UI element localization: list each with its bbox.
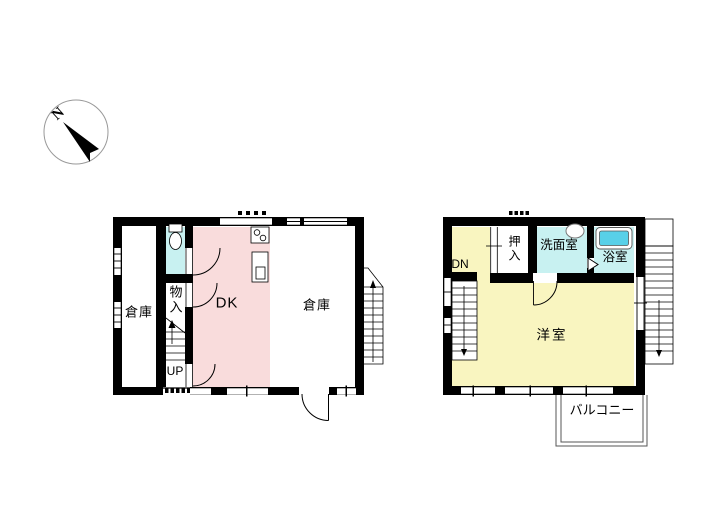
compass-needle-icon xyxy=(63,122,99,162)
kitchen-stove-icon xyxy=(251,227,269,243)
bathtub-icon xyxy=(596,228,632,250)
floor1-external-stairs xyxy=(362,268,383,364)
floor1-storage-right-label: 倉庫 xyxy=(303,299,331,312)
floor1-stairs-up xyxy=(166,318,185,360)
floor2-western-room-label: 洋室 xyxy=(537,328,568,342)
floor2-bathroom-label: 浴室 xyxy=(602,251,627,264)
floor1-plan xyxy=(113,211,383,421)
floor1-bottom-openings xyxy=(163,386,356,421)
floor2-washroom-label: 洗面室 xyxy=(540,239,578,252)
washbasin-icon xyxy=(566,224,584,238)
floor1-stairs-up-label: UP xyxy=(167,365,184,377)
floor2-left-windows xyxy=(443,278,452,333)
floor1-dk-label: DK xyxy=(216,296,239,311)
floor2-stairs-down-label: DN xyxy=(451,258,468,270)
floor2-stairs-down xyxy=(452,281,477,360)
floor1-storage-left-label: 倉庫 xyxy=(125,306,153,319)
floor-plan-page: N 倉庫 物入 UP DK 倉庫 DN 押入 洗面室 浴室 洋室 バルコニー xyxy=(0,0,705,525)
toilet-icon xyxy=(169,224,182,250)
floor-plan-canvas xyxy=(0,0,705,525)
floor2-closet-label: 押入 xyxy=(508,235,520,263)
kitchen-sink-icon xyxy=(252,252,268,282)
floor1-closet-label: 物入 xyxy=(169,285,182,315)
balcony-label: バルコニー xyxy=(570,404,635,417)
floor2-top-vent xyxy=(509,211,529,215)
floor2-external-stairs xyxy=(645,219,673,364)
